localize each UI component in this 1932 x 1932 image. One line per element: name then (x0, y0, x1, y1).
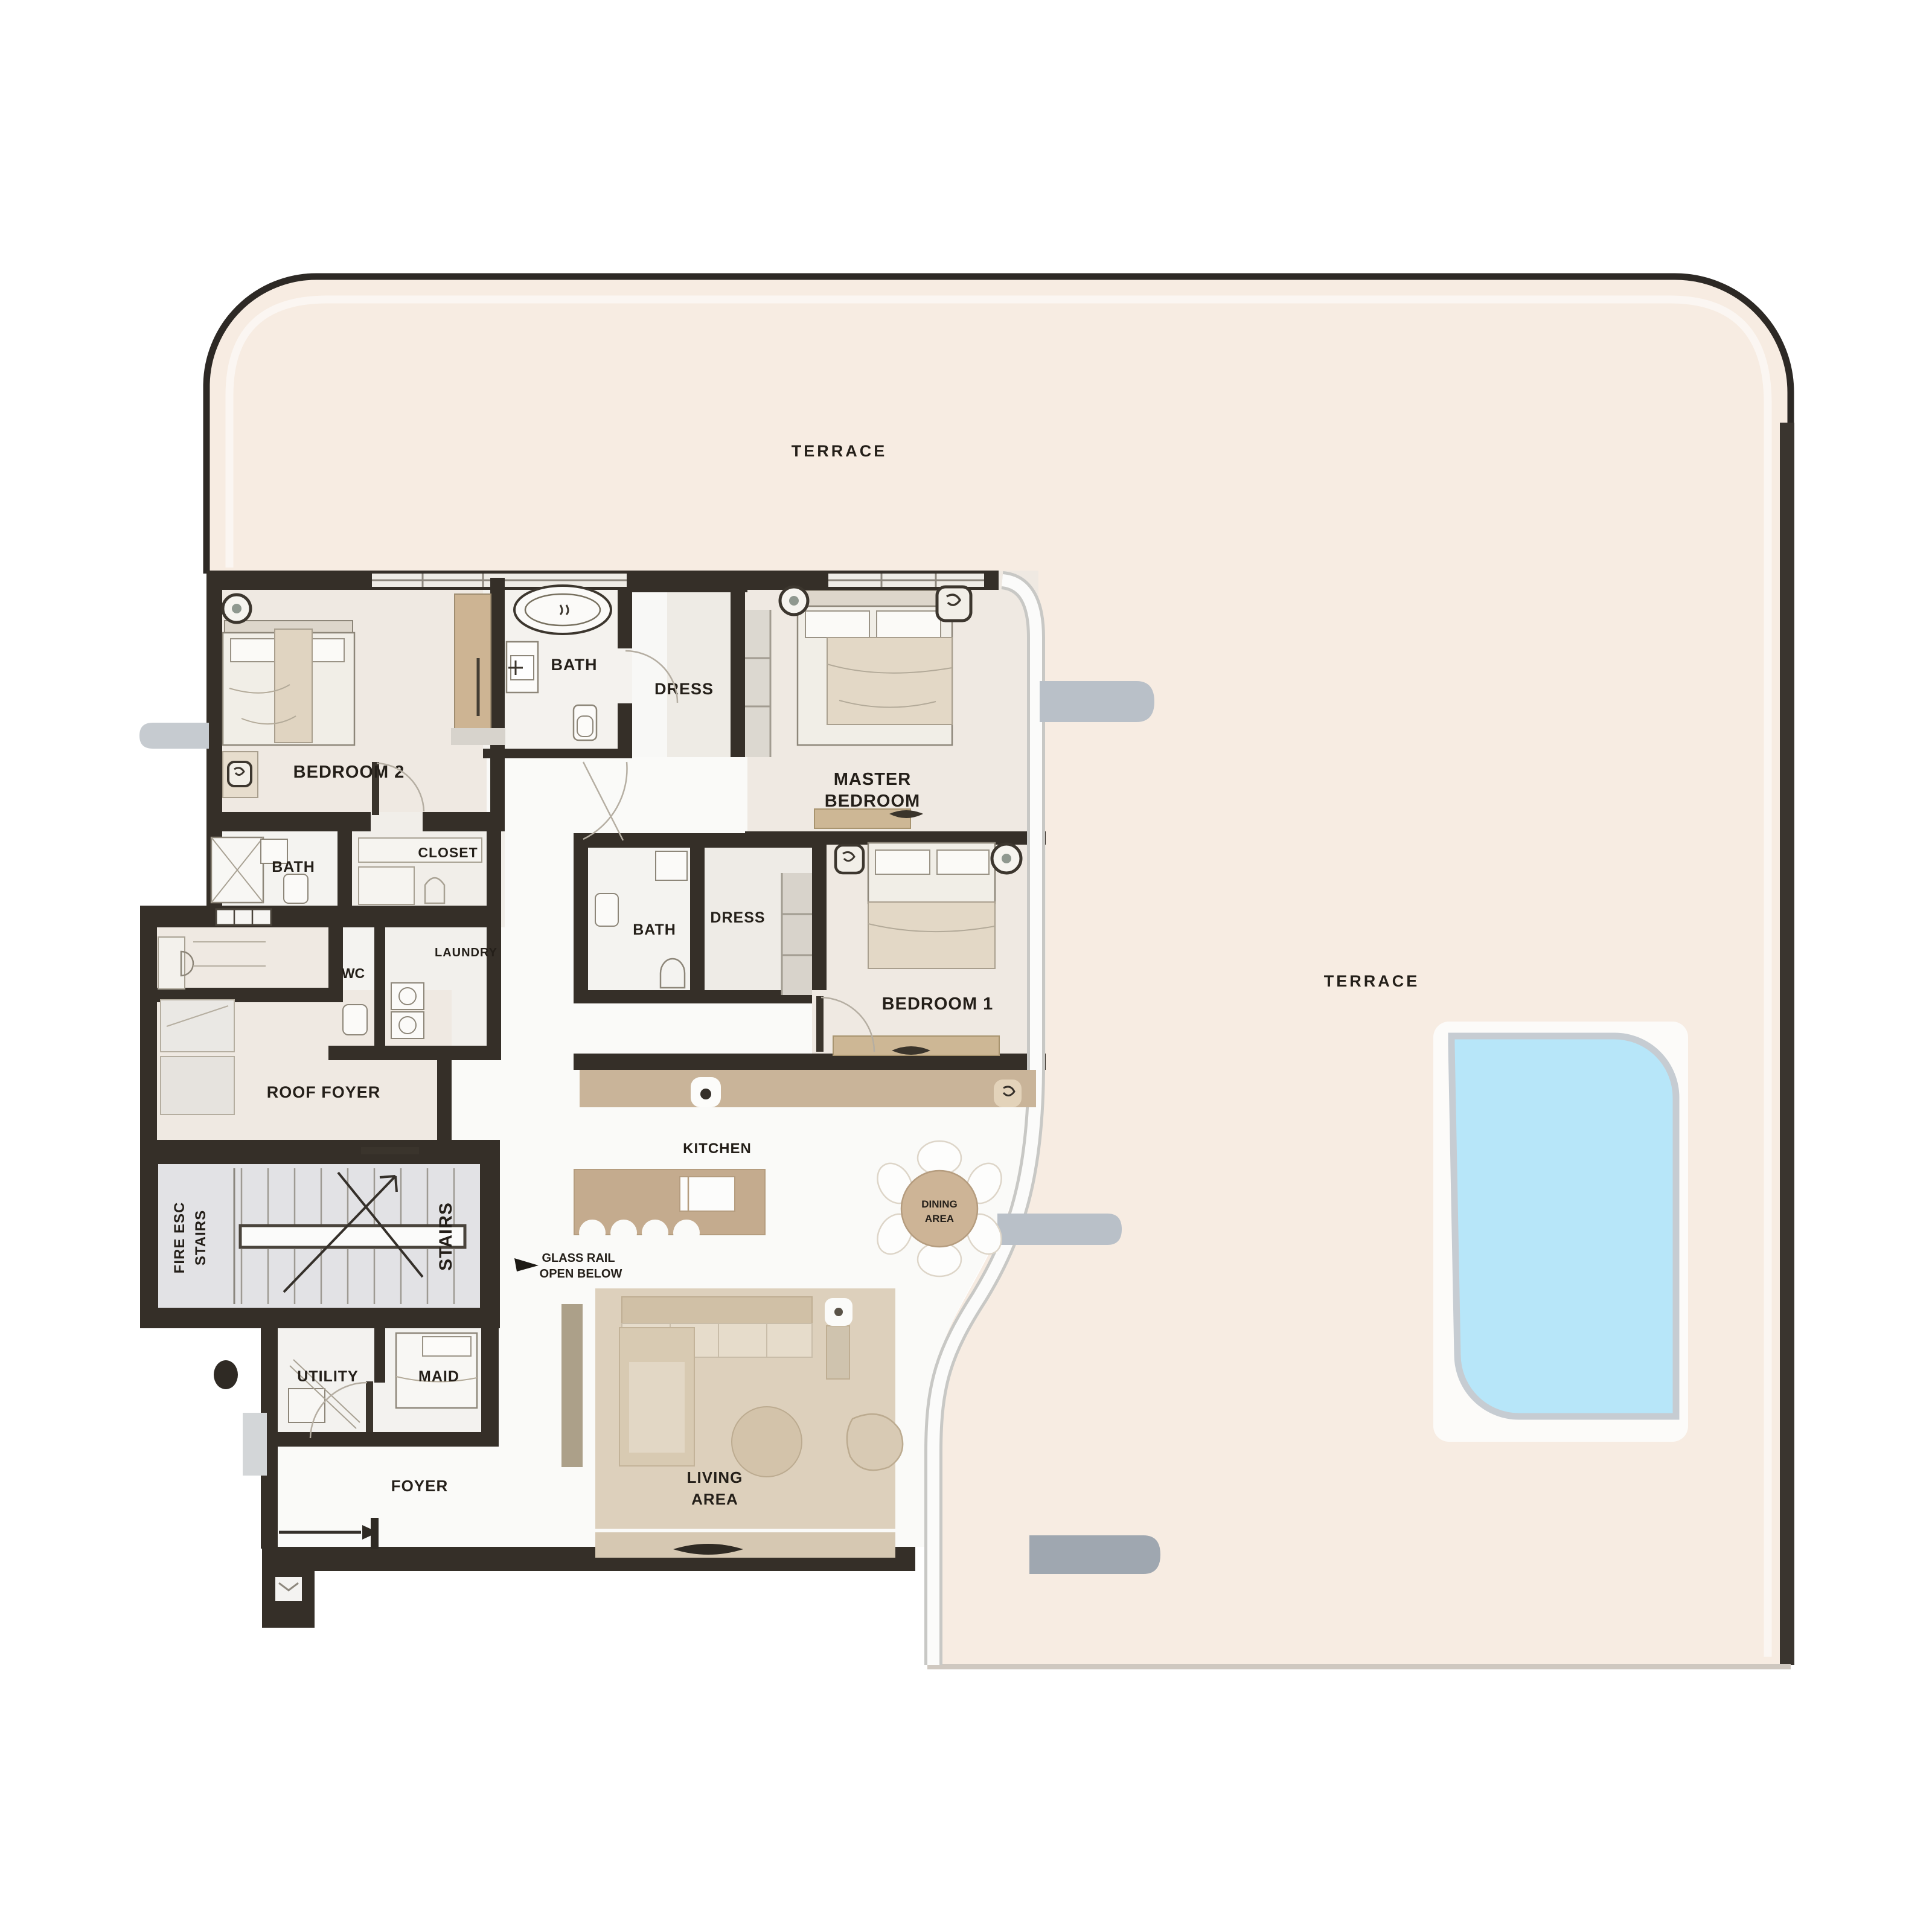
svg-text:AREA: AREA (691, 1490, 738, 1508)
svg-text:BATH: BATH (633, 921, 676, 938)
svg-text:DRESS: DRESS (654, 680, 714, 698)
svg-text:STAIRS: STAIRS (193, 1210, 209, 1265)
svg-text:FIRE ESC: FIRE ESC (171, 1202, 188, 1274)
svg-text:DRESS: DRESS (710, 909, 765, 926)
svg-text:KITCHEN: KITCHEN (683, 1140, 752, 1157)
svg-text:AREA: AREA (925, 1213, 954, 1224)
svg-text:BATH: BATH (272, 859, 315, 875)
svg-text:DINING: DINING (921, 1198, 958, 1210)
svg-text:WC: WC (342, 965, 365, 981)
svg-text:LIVING: LIVING (687, 1468, 743, 1486)
svg-text:TERRACE: TERRACE (792, 442, 888, 460)
svg-text:OPEN BELOW: OPEN BELOW (540, 1267, 622, 1281)
svg-text:STAIRS: STAIRS (436, 1202, 456, 1271)
svg-text:MASTER: MASTER (834, 770, 911, 789)
svg-text:FOYER: FOYER (391, 1477, 449, 1495)
svg-text:BEDROOM 1: BEDROOM 1 (882, 994, 994, 1014)
svg-text:UTILITY: UTILITY (297, 1368, 358, 1385)
svg-text:BATH: BATH (551, 656, 598, 674)
svg-text:MAID: MAID (418, 1368, 459, 1385)
svg-text:TERRACE: TERRACE (1324, 972, 1420, 990)
svg-text:ROOF FOYER: ROOF FOYER (267, 1083, 381, 1101)
svg-text:BEDROOM: BEDROOM (825, 792, 920, 811)
svg-text:CLOSET: CLOSET (418, 845, 478, 860)
svg-text:LAUNDRY: LAUNDRY (435, 946, 497, 959)
svg-text:GLASS RAIL: GLASS RAIL (542, 1252, 615, 1265)
